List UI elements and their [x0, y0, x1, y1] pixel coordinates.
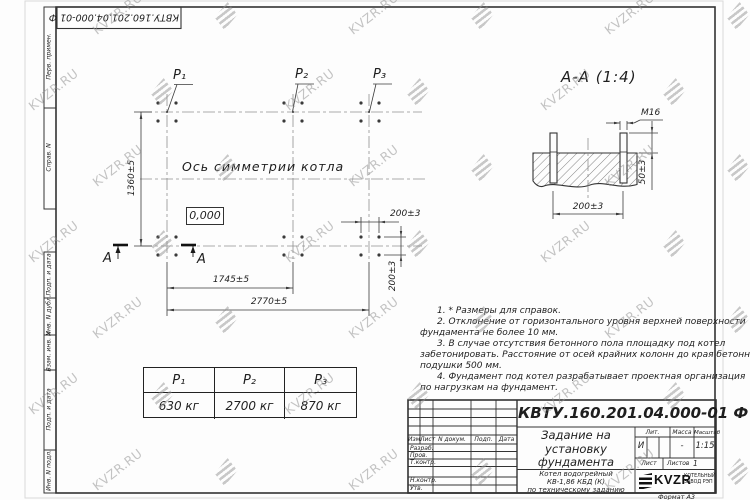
- boiler-symmetry-axis-label: Ось симметрии котла: [182, 160, 344, 174]
- plan-dimension-lines: [134, 84, 406, 316]
- load-table-header-p2: P₂: [215, 368, 286, 393]
- dim-200-section: 200±3: [566, 203, 610, 213]
- company-sub2: ЗАВОД РЭП: [684, 480, 713, 485]
- sheet-label: Лист: [635, 461, 663, 468]
- anchor-stud-left: [550, 133, 557, 183]
- dim-2770: 2770±5: [238, 298, 300, 308]
- load-table-header-p3: P₃: [285, 368, 356, 393]
- dim-200-bolt-vertical: 200±3: [389, 255, 399, 297]
- mass-label: Масса: [670, 430, 694, 437]
- section-title: А-А (1:4): [561, 69, 637, 86]
- sheets-value: 1: [693, 460, 698, 468]
- mass-value: -: [670, 442, 694, 451]
- cut-letter-right: А: [197, 253, 206, 267]
- col-izm: Изм.: [408, 437, 420, 444]
- section-cut-marks: [113, 245, 196, 259]
- company-sub1: КОТЕЛЬНЫЙ: [684, 474, 715, 479]
- elevation-mark: 0,000: [186, 207, 224, 225]
- dim-50: 50±3: [639, 155, 649, 189]
- margin-label-podp-data-2: Подп. и дата: [47, 372, 54, 446]
- note-line: забетонировать. Расстояние от осей крайн…: [420, 350, 750, 360]
- dim-m16: М16: [641, 109, 660, 119]
- load-table-value-p3: 870 кг: [285, 393, 356, 419]
- cut-letter-left: А: [103, 252, 112, 266]
- product-line3: по техническому заданию: [517, 487, 635, 495]
- scale-value: 1:15: [694, 442, 716, 451]
- dim-1745: 1745±5: [201, 276, 261, 286]
- load-table-value-p2: 2700 кг: [215, 393, 286, 419]
- note-line: фундамента не более 10 мм.: [420, 328, 558, 338]
- load-table: P₁ P₂ P₃ 630 кг 2700 кг 870 кг: [143, 367, 357, 418]
- plan-dimension-arrows: [140, 112, 403, 311]
- doc-title-line2: установку: [517, 443, 635, 456]
- dim-1360: 1360±5: [128, 155, 138, 201]
- note-line: 3. В случае отсутствия бетонного пола пл…: [420, 339, 725, 349]
- format-label: Формат А3: [658, 494, 695, 500]
- col-data: Дата: [496, 437, 517, 444]
- margin-label-perv-primen: Перв. примен.: [47, 11, 54, 101]
- note-line: по нагрузкам на фундамент.: [420, 383, 558, 393]
- row-nkontr: Н.контр.: [410, 478, 437, 485]
- col-podp: Подп.: [471, 437, 496, 444]
- row-tkontr: Т.контр.: [410, 460, 436, 467]
- note-line: 4. Фундамент под котел разрабатывает про…: [420, 372, 745, 382]
- anchor-stud-right: [620, 133, 627, 183]
- doc-title-line3: фундамента: [517, 456, 635, 469]
- title-block-designation: КВТУ.160.201.04.000-01 Ф: [518, 405, 715, 422]
- dim-200-bolt-horizontal: 200±3: [390, 210, 420, 220]
- load-table-value-p1: 630 кг: [144, 393, 215, 419]
- plan-point-label-p2: P₂: [295, 68, 308, 82]
- note-line: 2. Отклонение от горизонтального уровня …: [420, 317, 746, 327]
- note-line: подушки 500 мм.: [420, 361, 502, 371]
- scale-label: Масштаб: [694, 430, 716, 436]
- lit-value: И: [635, 442, 647, 451]
- plan-point-label-p1: P₁: [173, 69, 186, 83]
- plan-point-label-p3: P₃: [373, 68, 386, 82]
- load-table-header-p1: P₁: [144, 368, 215, 393]
- col-ndok: N докум.: [433, 437, 471, 444]
- lit-label: Лит.: [635, 430, 670, 437]
- sheets-label: Листов: [667, 461, 689, 468]
- note-line: 1. * Размеры для справок.: [420, 306, 561, 316]
- margin-label-inv-podl: Инв. N подл.: [47, 440, 54, 500]
- doc-title-line1: Задание на: [517, 429, 635, 442]
- row-utv: Утв.: [410, 486, 423, 493]
- top-stamp-designation: КВТУ.160.201.04.000-01 Ф: [59, 11, 179, 21]
- margin-label-sprav-n: Справ. N: [47, 112, 54, 202]
- drawing-sheet: КВТУ.160.201.04.000-01 Ф Перв. примен. С…: [0, 0, 750, 500]
- col-list: Лист: [420, 437, 433, 444]
